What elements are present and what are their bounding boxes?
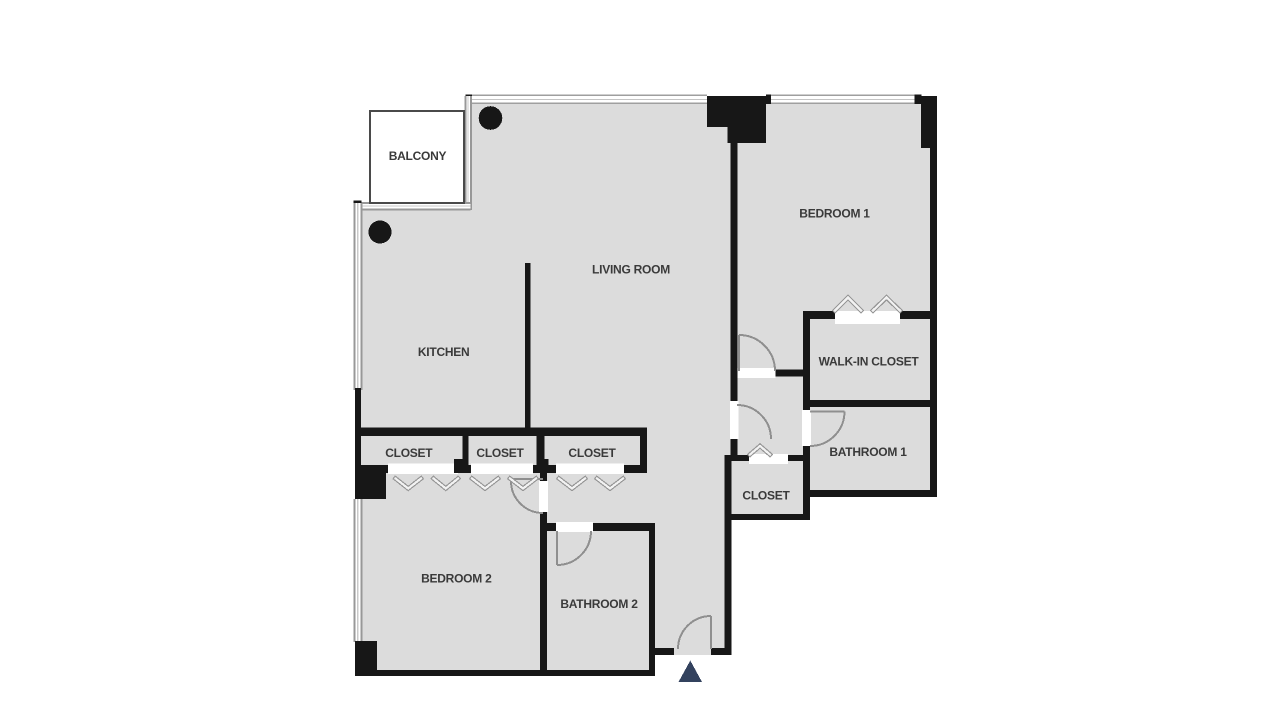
svg-text:BEDROOM 2: BEDROOM 2 [421,572,492,586]
svg-text:KITCHEN: KITCHEN [418,345,470,359]
svg-text:CLOSET: CLOSET [568,446,616,460]
svg-text:BATHROOM 2: BATHROOM 2 [560,597,638,611]
svg-text:WALK-IN CLOSET: WALK-IN CLOSET [819,355,920,369]
svg-text:CLOSET: CLOSET [742,489,790,503]
svg-text:CLOSET: CLOSET [476,446,524,460]
svg-text:LIVING ROOM: LIVING ROOM [592,263,670,277]
svg-text:BEDROOM 1: BEDROOM 1 [799,207,870,221]
svg-text:BATHROOM 1: BATHROOM 1 [829,445,907,459]
svg-text:BALCONY: BALCONY [389,149,447,163]
svg-text:CLOSET: CLOSET [385,446,433,460]
